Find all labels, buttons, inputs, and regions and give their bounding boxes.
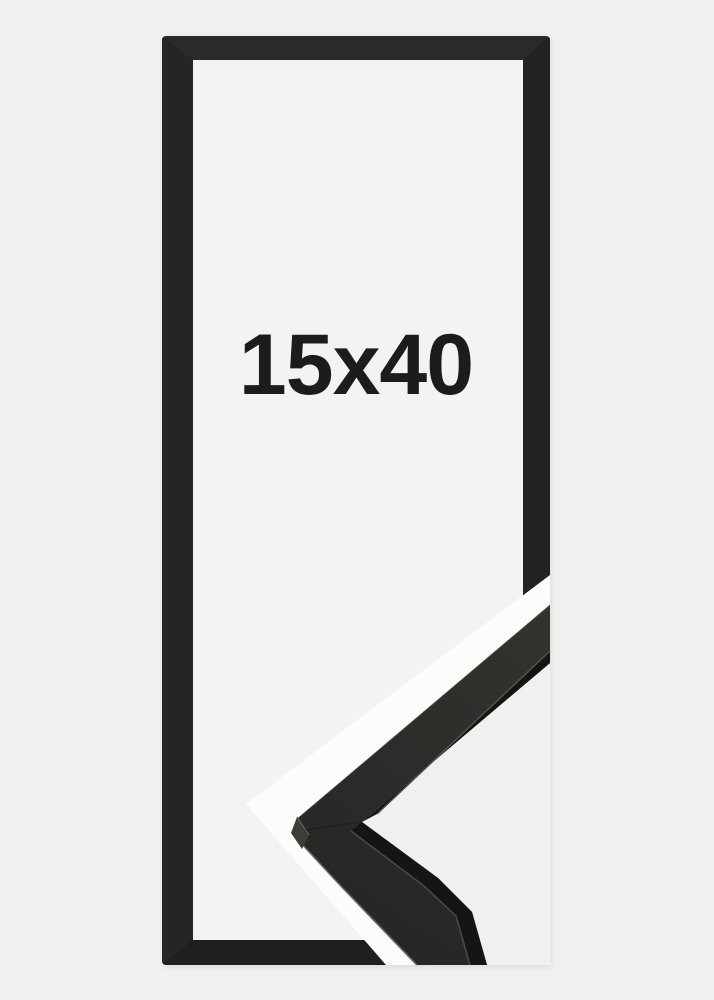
corner-detail-inset bbox=[0, 0, 714, 1000]
product-photo: 15x40 bbox=[0, 0, 714, 1000]
